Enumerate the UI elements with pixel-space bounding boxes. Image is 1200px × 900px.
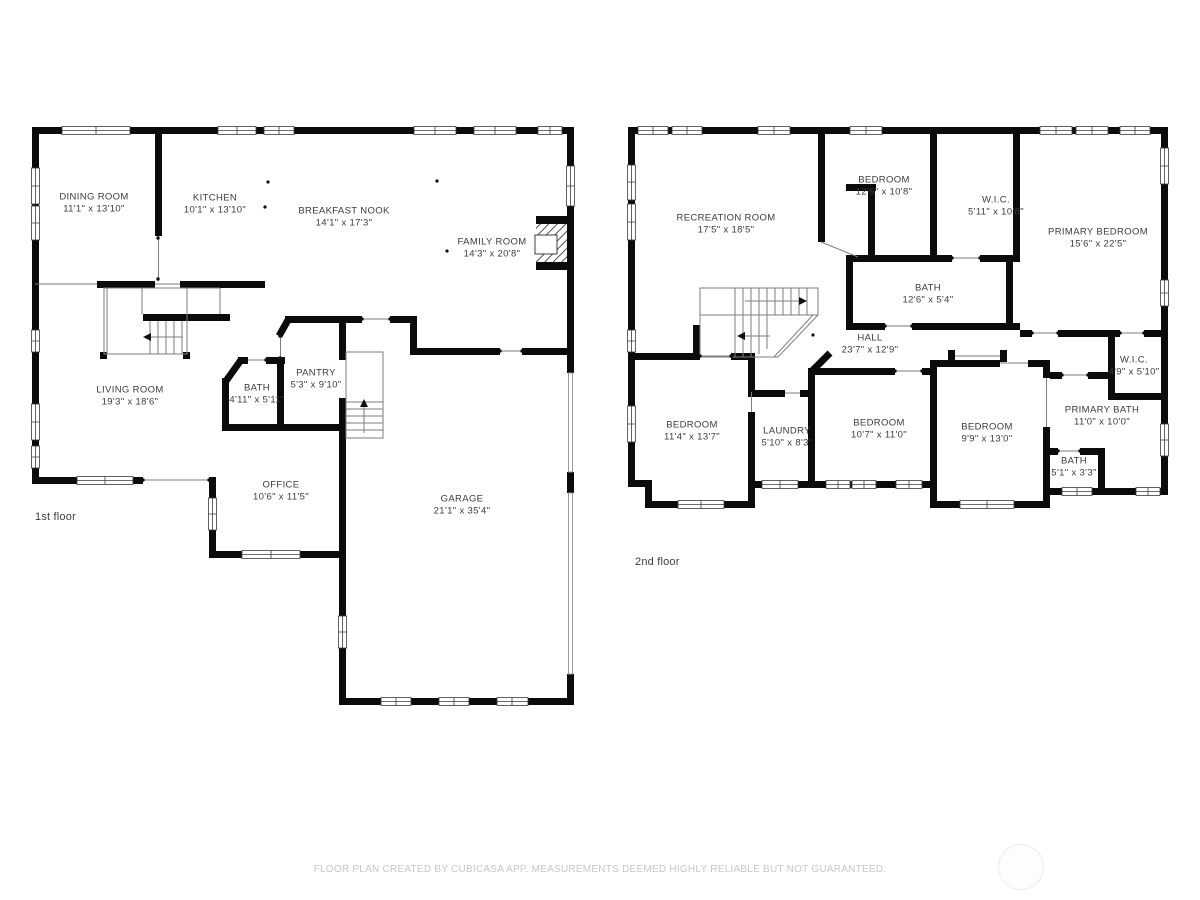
room-label-wic-top: W.I.C. 5'11" x 10'8" [968, 195, 1024, 218]
garage-door [569, 373, 573, 472]
room-label-bath-small: BATH 5'1" x 3'3" [1051, 456, 1096, 479]
garage-door [569, 493, 573, 674]
watermark-circle [998, 844, 1044, 890]
floorplan-page: DINING ROOM 11'1" x 13'10" KITCHEN 10'1"… [0, 0, 1200, 900]
room-label-garage: GARAGE 21'1" x 35'4" [434, 494, 491, 517]
room-label-recreation-room: RECREATION ROOM 17'5" x 18'5" [676, 213, 775, 236]
room-label-bedroom-left: BEDROOM 11'4" x 13'7" [664, 420, 720, 443]
room-label-hall: HALL 23'7" x 12'9" [842, 333, 899, 356]
room-label-pantry: PANTRY 5'3" x 9'10" [290, 368, 341, 391]
staircase-garage [346, 352, 383, 438]
floor-tag-2nd: 2nd floor [635, 556, 680, 568]
room-label-wic-small: W.I.C. 4'9" x 5'10" [1108, 355, 1159, 378]
room-label-family-room: FAMILY ROOM 14'3" x 20'8" [458, 237, 527, 260]
room-label-bath-1f: BATH 4'11" x 5'11" [229, 383, 284, 406]
floor-tag-1st: 1st floor [35, 511, 76, 523]
floorplan-canvas [0, 0, 1200, 900]
room-label-primary-bath: PRIMARY BATH 11'0" x 10'0" [1065, 405, 1139, 428]
room-label-primary-bedroom: PRIMARY BEDROOM 15'6" x 22'5" [1048, 227, 1148, 250]
room-label-breakfast-nook: BREAKFAST NOOK 14'1" x 17'3" [298, 206, 389, 229]
room-label-laundry: LAUNDRY 5'10" x 8'3" [761, 426, 812, 449]
room-label-bedroom-right: BEDROOM 9'9" x 13'0" [961, 422, 1013, 445]
room-label-dining-room: DINING ROOM 11'1" x 13'10" [59, 192, 128, 215]
fireplace [535, 216, 567, 270]
room-label-bedroom-mid: BEDROOM 10'7" x 11'0" [851, 418, 907, 441]
room-label-living-room: LIVING ROOM 19'3" x 18'6" [96, 385, 163, 408]
room-label-bath-2f: BATH 12'6" x 5'4" [902, 283, 953, 306]
room-label-office: OFFICE 10'6" x 11'5" [253, 480, 309, 503]
room-label-bedroom-top: BEDROOM 12'6" x 10'8" [856, 175, 913, 198]
room-label-kitchen: KITCHEN 10'1" x 13'10" [184, 193, 246, 216]
staircase-second-floor [700, 288, 818, 357]
